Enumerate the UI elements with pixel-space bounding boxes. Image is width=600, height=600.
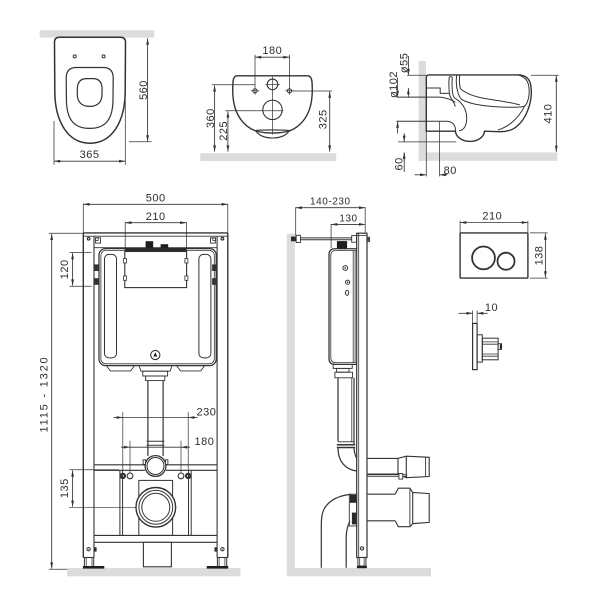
svg-text:140-230: 140-230 xyxy=(310,197,351,208)
svg-text:ø55: ø55 xyxy=(399,53,411,73)
svg-text:230: 230 xyxy=(197,406,217,418)
svg-text:180: 180 xyxy=(195,436,215,448)
svg-text:135: 135 xyxy=(59,478,71,498)
svg-text:ø102: ø102 xyxy=(388,71,400,98)
svg-text:560: 560 xyxy=(138,80,150,100)
svg-text:180: 180 xyxy=(262,45,282,57)
svg-text:120: 120 xyxy=(59,259,71,279)
svg-text:360: 360 xyxy=(205,108,217,128)
svg-text:60: 60 xyxy=(394,157,406,170)
svg-text:80: 80 xyxy=(444,165,457,177)
svg-text:210: 210 xyxy=(146,211,166,223)
svg-text:10: 10 xyxy=(485,302,498,314)
svg-text:225: 225 xyxy=(218,121,230,141)
svg-text:130: 130 xyxy=(339,213,357,224)
svg-text:500: 500 xyxy=(146,193,166,205)
svg-text:365: 365 xyxy=(80,149,100,161)
svg-text:210: 210 xyxy=(482,210,502,222)
svg-text:1115 - 1320: 1115 - 1320 xyxy=(38,356,50,433)
svg-text:325: 325 xyxy=(318,109,330,129)
svg-text:410: 410 xyxy=(542,104,554,124)
svg-text:138: 138 xyxy=(534,246,546,266)
